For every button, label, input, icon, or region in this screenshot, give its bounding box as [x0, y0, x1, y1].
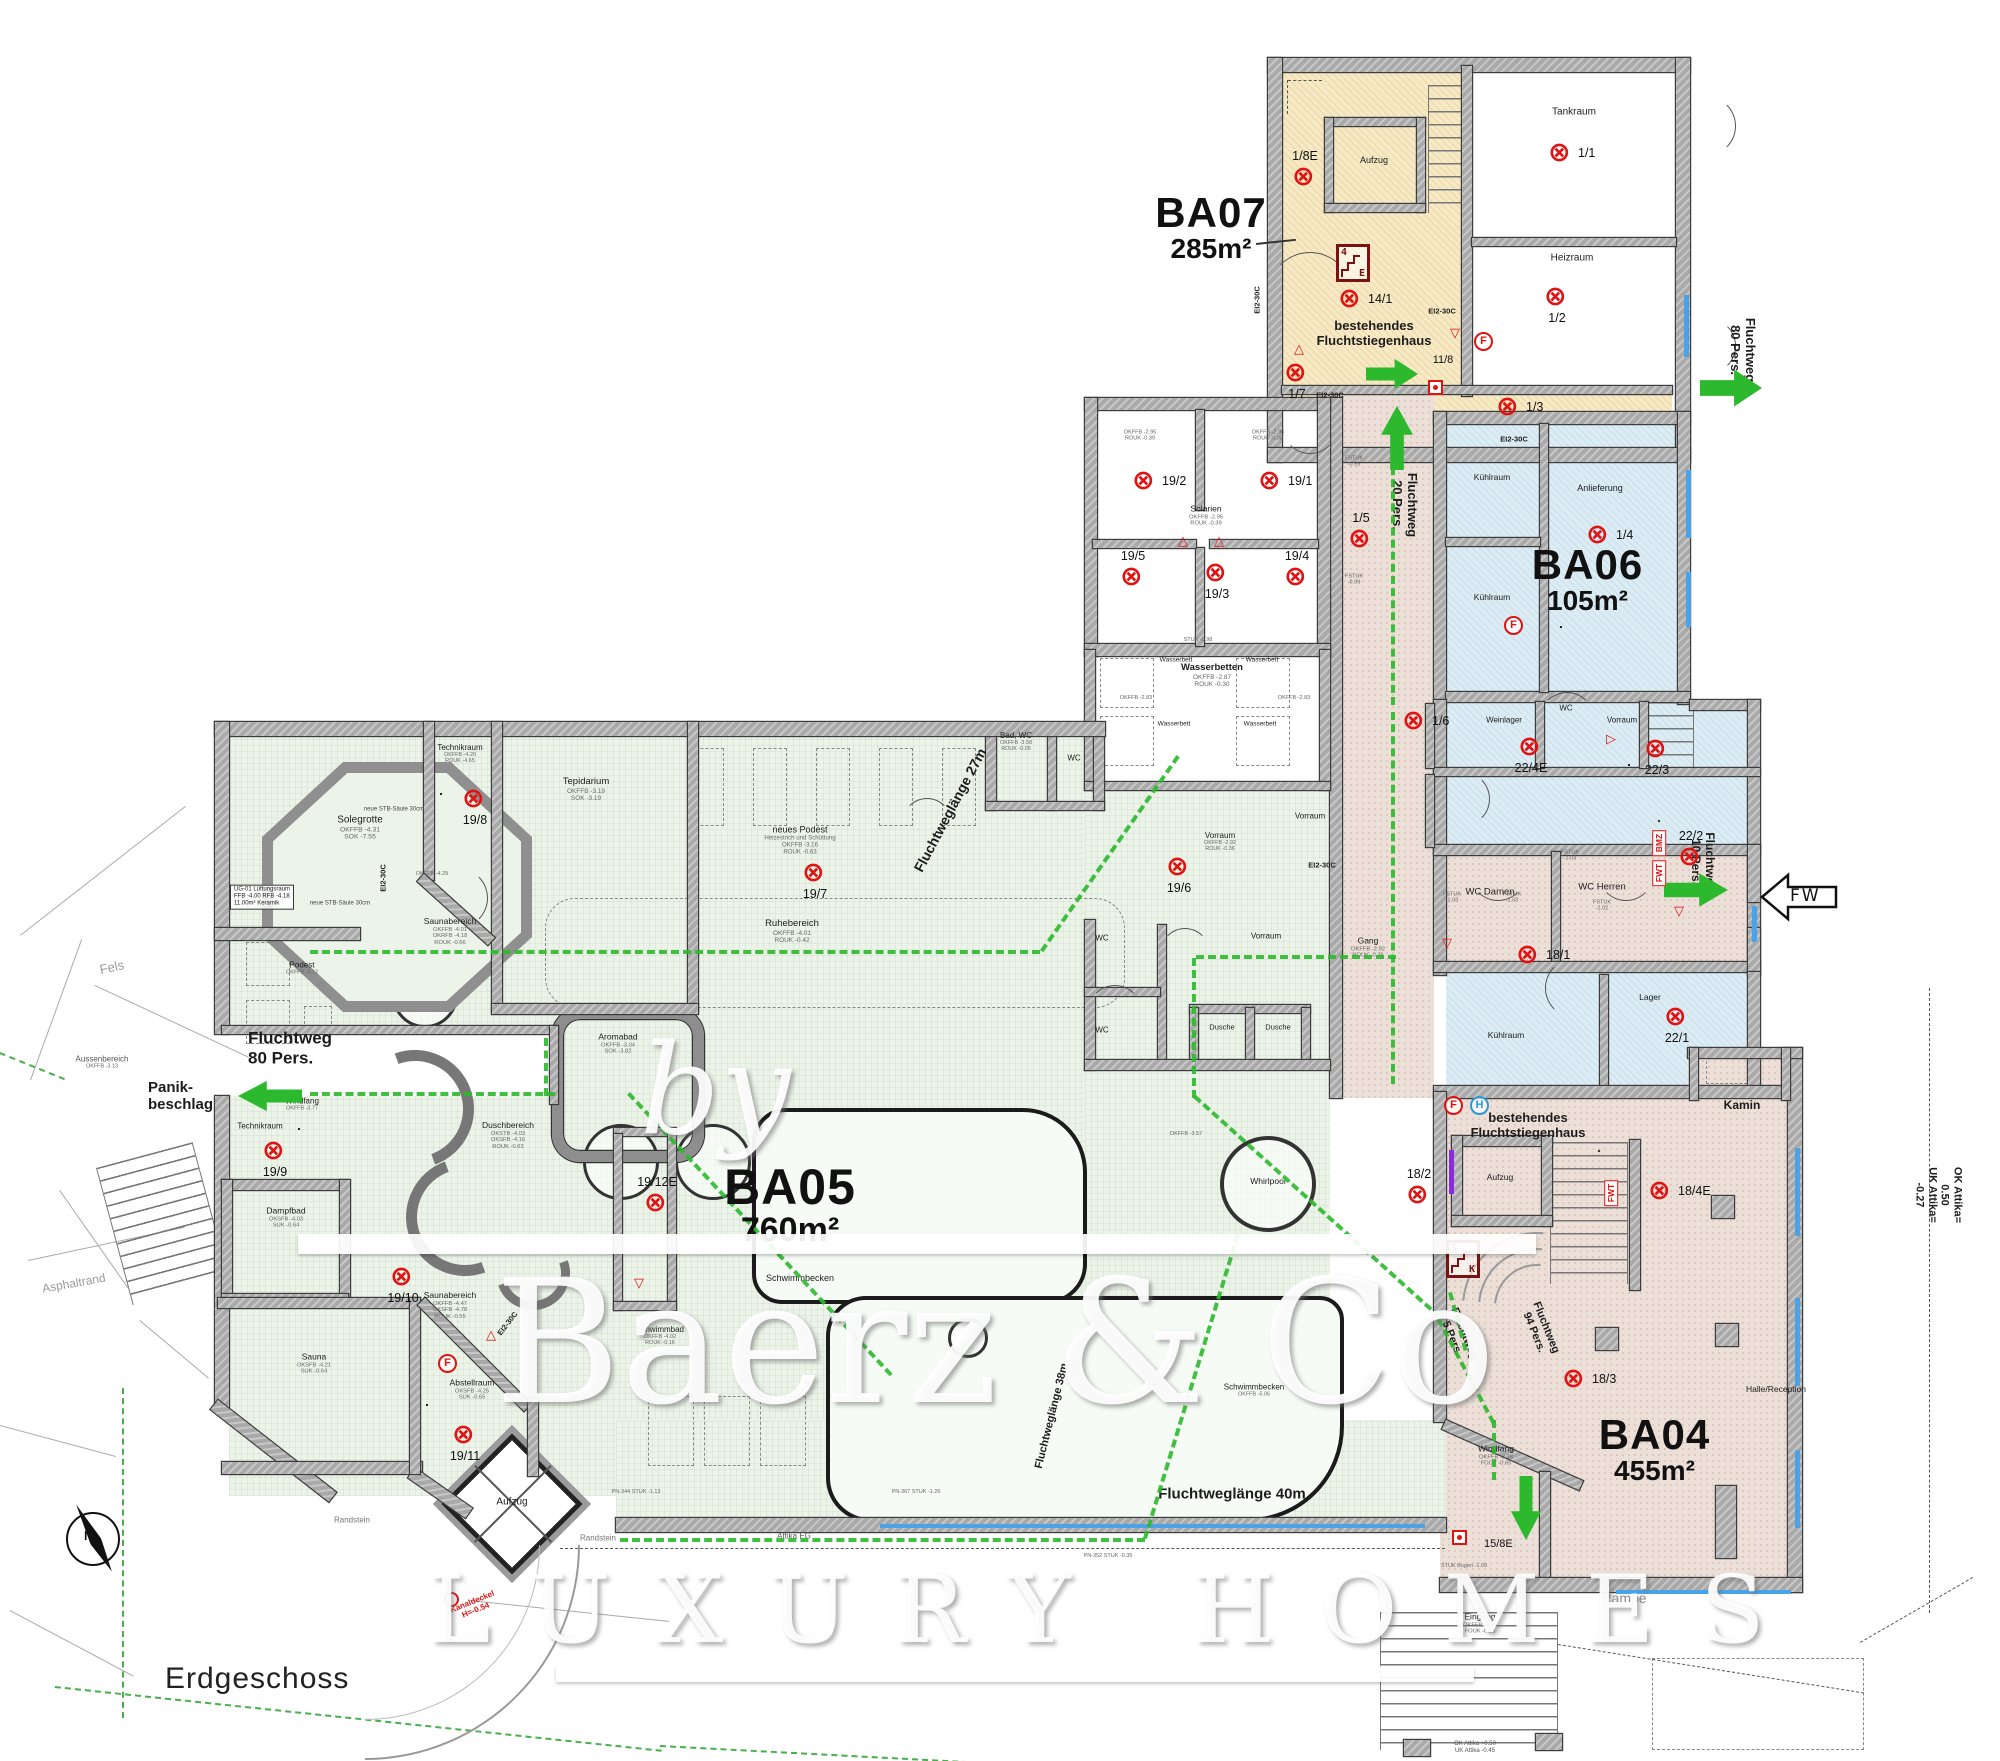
text-label: FSTUK -0.99: [1345, 456, 1363, 469]
glazing-window: [1795, 1298, 1800, 1386]
marker-label: 1/5: [1352, 511, 1369, 525]
marker-label: 19/7: [803, 887, 827, 901]
marker-label: 18/1: [1546, 948, 1570, 962]
extinguisher-icon: ⊗: [1348, 526, 1371, 552]
marker-label: 1/6: [1432, 714, 1449, 728]
extinguisher-icon: ⊗: [1678, 844, 1701, 870]
dashed-outline: [1652, 1658, 1864, 1750]
text-label: Wasserbett: [1160, 656, 1193, 663]
text-label: DampfbadOKSFB -4.03 SUK -0.64: [266, 1206, 305, 1229]
text-label: Aufzug: [1360, 155, 1388, 165]
text-label: Bad, WCOKFFB -3.58 ROUK -0.05: [1000, 731, 1032, 753]
wall-arc: [1282, 398, 1338, 454]
wall: [1085, 644, 1330, 656]
dashed-outline: [1100, 716, 1154, 766]
text-label: WC: [1095, 1025, 1108, 1034]
fire-system-box: FWT: [1652, 860, 1666, 886]
extinguisher-icon: ⊗: [1120, 564, 1143, 590]
marker-label: 19/2: [1162, 474, 1186, 488]
wall: [1462, 66, 1472, 396]
terrain-line: [30, 939, 82, 1080]
area-id: BA05: [700, 1162, 880, 1212]
dashed-reference-line: [560, 1548, 1445, 1549]
marker-label: 1/2: [1548, 311, 1565, 325]
wall: [1472, 238, 1676, 246]
wall: [222, 1180, 232, 1304]
door-triangle-icon: △: [1214, 534, 1224, 547]
extinguisher-marker: ⊗1/5: [1348, 526, 1374, 552]
text-label: PN-344 STUK -1.13: [612, 1489, 661, 1495]
wall: [1325, 118, 1425, 126]
marker-label: 18/4E: [1678, 1184, 1711, 1198]
text-label: OK Attika= 0.50 UK Attika= -0.27: [1913, 1164, 1964, 1226]
marker-label: 19/4: [1285, 549, 1309, 563]
text-label: Fluchtweglänge 40m: [1158, 1485, 1306, 1502]
text-label: OKFFB -2.95 ROUK -0.38: [1252, 430, 1284, 443]
text-label: OKFFB -4.29: [416, 871, 448, 877]
glazing-window: [1795, 1450, 1800, 1528]
extinguisher-marker: ⊗19/2: [1132, 468, 1158, 494]
extinguisher-marker: ⊗1/6: [1402, 708, 1428, 734]
marker-label: 1/3: [1526, 400, 1543, 414]
terrain-line: [20, 806, 186, 936]
wall: [1302, 1008, 1310, 1066]
wall: [1434, 768, 1760, 776]
text-label: WC: [1095, 933, 1108, 942]
extinguisher-marker: ⊗1/1: [1548, 140, 1574, 166]
extinguisher-marker: ⊗14/1: [1338, 286, 1364, 312]
extinguisher-marker: ⊗19/1: [1258, 468, 1284, 494]
stair-treads: [96, 1142, 229, 1305]
door-triangle-icon: ▽: [1442, 936, 1452, 949]
wall: [1630, 1140, 1640, 1290]
wall: [492, 1004, 698, 1014]
extinguisher-icon: ⊗: [1644, 736, 1667, 762]
extinguisher-marker: ⊗18/2: [1406, 1182, 1432, 1208]
marker-label: 19/11: [450, 1449, 480, 1463]
text-label: WC: [1067, 753, 1080, 762]
text-label: Fels: [98, 958, 125, 978]
escape-route-line: [310, 1092, 555, 1096]
text-label: Kühlraum: [1474, 473, 1510, 483]
terrain-line: [10, 1610, 134, 1677]
extinguisher-icon: ⊗: [1406, 1182, 1429, 1208]
text-label: FSTUK -1.02: [1593, 900, 1611, 913]
marker-label: 19/12E: [637, 1175, 677, 1189]
text-label: OKFFB -2.83: [1278, 695, 1310, 701]
text-label: bestehendes Fluchtstiegenhaus: [1471, 1111, 1586, 1141]
door-triangle-icon: ▽: [1450, 326, 1460, 339]
north-compass: N: [60, 1506, 126, 1572]
escape-route-line: [620, 1538, 1145, 1542]
stair-treads: [1428, 85, 1462, 213]
text-label: Kühlraum: [1488, 1031, 1524, 1041]
text-label: Randstein: [334, 1515, 370, 1524]
text-label: TechnikraumOKFFB -4.20 ROUK -4.65: [437, 743, 482, 765]
wall: [1094, 726, 1104, 810]
marker-label: 19/9: [263, 1165, 287, 1179]
extinguisher-marker: ⊗22/1: [1664, 1004, 1690, 1030]
door-triangle-icon: △: [1294, 342, 1304, 355]
wall: [492, 722, 502, 1012]
text-label: TepidariumOKFFB -3.19 SOK -3.19: [563, 777, 609, 803]
watermark-bar: [556, 1666, 1474, 1682]
door-triangle-icon: △: [1178, 534, 1188, 547]
text-label: Aufzug: [1487, 1173, 1513, 1183]
text-label: EI2-30C: [1254, 286, 1263, 314]
text-label: STUK -0.98: [1184, 637, 1213, 643]
text-label: neue STB-Säule 30cm: [364, 807, 424, 814]
hazard-hatch-icon: [440, 793, 442, 795]
dashed-outline: [753, 748, 787, 826]
text-label: SolarienOKFFB -2.95 ROUK -0.39: [1189, 504, 1223, 527]
dashed-reference-line: [1287, 80, 1288, 114]
wall: [424, 722, 434, 880]
text-label: Technikraum: [237, 1121, 282, 1130]
wall: [1196, 410, 1204, 510]
glazing-window: [1795, 1148, 1800, 1236]
text-label: EI2-30C: [1500, 436, 1528, 445]
area-label-ba07: BA07 285m²: [1146, 192, 1276, 265]
text-label: Panik- beschlag: [148, 1079, 213, 1114]
escape-route-line: [544, 1038, 548, 1096]
glazing-window: [1686, 572, 1691, 627]
text-label: Lager: [1639, 993, 1661, 1003]
text-label: PN-367 STUK -1.26: [892, 1489, 941, 1495]
extinguisher-marker: ⊗19/5: [1120, 564, 1146, 590]
marker-label: 1/4: [1616, 528, 1633, 542]
wall-arc: [1676, 96, 1736, 156]
glazing-window: [880, 1524, 1425, 1528]
text-label: Fluchtweg 80 Pers.: [248, 1028, 332, 1067]
text-label: Halle/Reception: [1746, 1385, 1806, 1395]
extinguisher-icon: ⊗: [1518, 734, 1541, 760]
letter-circle-f: F: [1474, 332, 1493, 351]
wall: [1325, 204, 1425, 212]
stair-symbol-box: 4E: [1336, 244, 1370, 282]
extinguisher-icon: ⊗: [1204, 560, 1227, 586]
letter-circle-f: F: [1444, 1096, 1463, 1115]
wall: [215, 928, 360, 940]
extinguisher-marker: ⊗19/4: [1284, 564, 1310, 590]
escape-route-line: [1192, 958, 1196, 1098]
alarm-box-marker: 11/8: [1428, 380, 1443, 395]
extinguisher-icon: ⊗: [802, 860, 825, 886]
wall: [1325, 118, 1333, 212]
wall: [1417, 118, 1425, 212]
marker-label: 19/10: [387, 1291, 418, 1305]
text-label: Vorraum: [1607, 715, 1637, 724]
wall-arc: [1160, 928, 1210, 978]
text-label: SolegrotteOKFFB -4.31 SOK -7.55: [337, 814, 383, 841]
hazard-hatch-icon: [1628, 764, 1630, 766]
text-label: Vorraum: [1251, 931, 1281, 940]
extinguisher-marker: ⊗19/8: [462, 786, 488, 812]
alarm-box-marker: 15/8E: [1452, 1530, 1467, 1545]
wall: [1712, 1196, 1734, 1218]
marker-label: 19/8: [463, 813, 487, 827]
wall: [215, 722, 229, 1034]
marker-label: 1/1: [1578, 146, 1595, 160]
dashed-reference-line: [1929, 988, 1930, 1613]
hazard-hatch-icon: [1560, 626, 1562, 628]
text-label: AussenbereichOKFFB -3.13: [76, 1054, 129, 1069]
extinguisher-icon: ⊗: [1548, 140, 1571, 166]
extinguisher-icon: ⊗: [262, 1138, 285, 1164]
marker-label: 14/1: [1368, 292, 1392, 306]
extinguisher-icon: ⊗: [1166, 854, 1189, 880]
compass-north-letter: N: [84, 1528, 93, 1543]
wall: [1085, 398, 1097, 656]
text-label: RuhebereichOKFFB -4.01 ROUK -0.42: [765, 919, 819, 945]
wall: [1716, 1324, 1738, 1346]
text-label: Weinlager: [1486, 715, 1522, 724]
extinguisher-marker: ⊗19/10: [390, 1264, 416, 1290]
watermark-brand: Baerz & Co: [420, 1242, 1570, 1443]
dashed-reference-line: [1288, 80, 1322, 81]
wall: [1048, 726, 1056, 810]
extinguisher-marker: ⊗22/2: [1678, 844, 1704, 870]
text-label: WC Herren: [1578, 883, 1626, 894]
escape-route-line: [310, 950, 1040, 954]
text-label: Whirlpool: [1250, 1177, 1285, 1187]
text-label: EI2-30C: [1308, 862, 1336, 871]
text-label: UG-01 Lüftungsraum FFB -4.00 RFB -4.18 1…: [230, 885, 294, 910]
terrain-line: [0, 1425, 116, 1457]
marker-label: 15/8E: [1484, 1538, 1513, 1550]
extinguisher-icon: ⊗: [1284, 360, 1307, 386]
extinguisher-marker: ⊗18/1: [1516, 942, 1542, 968]
text-label: OK Attika +0.50 UK Attika -0.45: [1454, 1741, 1496, 1755]
extinguisher-icon: ⊗: [1648, 1178, 1671, 1204]
fire-system-box: FWT: [1604, 1180, 1618, 1206]
site-boundary-line: [660, 1745, 1080, 1761]
glazing-window: [1449, 1150, 1454, 1194]
terrain-line: [139, 1320, 209, 1379]
text-label: Aufzug: [496, 1496, 527, 1508]
wall: [1434, 412, 1690, 424]
wall: [1782, 1048, 1790, 1100]
extinguisher-marker: ⊗1/2: [1544, 284, 1570, 310]
text-label: SaunabereichOKFFB -4.01 OKRFB -4.18 ROUK…: [424, 917, 476, 947]
wall: [215, 722, 1105, 736]
wall: [1690, 1048, 1698, 1100]
marker-label: 18/3: [1592, 1372, 1616, 1386]
text-label: neue STB-Säule 30cm: [310, 901, 370, 908]
wall: [222, 1180, 348, 1190]
marker-label: 22/1: [1665, 1031, 1689, 1045]
wall: [688, 722, 698, 1012]
marker-label: 11/8: [1433, 354, 1454, 366]
wall: [1434, 1086, 1800, 1098]
text-label: Wasserbett: [1246, 656, 1279, 663]
wall: [1716, 1486, 1736, 1558]
text-label: Dusche: [1265, 1024, 1290, 1033]
wall-arc: [1436, 772, 1490, 826]
wall: [1210, 540, 1318, 548]
text-label: Anlieferung: [1577, 483, 1623, 493]
wall: [1678, 412, 1690, 704]
extinguisher-icon: ⊗: [1292, 164, 1315, 190]
text-label: DuschbereichOKSTB -4.03 OKSFB -4.16 ROUK…: [482, 1121, 534, 1151]
wall: [1404, 1740, 1430, 1756]
fw-label: FW: [1790, 886, 1821, 906]
zone: [1434, 702, 1760, 768]
dashed-outline: [816, 748, 850, 826]
extinguisher-marker: ⊗19/7: [802, 860, 828, 886]
marker-label: 19/5: [1121, 549, 1145, 563]
wall: [1330, 398, 1342, 1098]
marker-label: 19/6: [1167, 881, 1191, 895]
escape-route-line: [1196, 955, 1396, 959]
extinguisher-icon: ⊗: [1544, 284, 1567, 310]
text-label: OKFFB -2.83: [1120, 695, 1152, 701]
marker-label: 19/3: [1205, 587, 1229, 601]
extinguisher-marker: ⊗18/4E: [1648, 1178, 1674, 1204]
wall-arc: [1540, 692, 1594, 746]
text-label: Wasserbett: [1244, 720, 1277, 727]
area-id: BA06: [1520, 544, 1655, 586]
text-label: WC: [1559, 703, 1572, 712]
extinguisher-marker: ⊗19/9: [262, 1138, 288, 1164]
area-id: BA07: [1146, 192, 1276, 234]
text-label: neues PodestHeizestrich und Schüttung OK…: [764, 824, 835, 855]
marker-label: 18/2: [1407, 1167, 1431, 1181]
watermark-by: by: [640, 1018, 791, 1163]
text-label: Heizraum: [1551, 252, 1594, 264]
text-label: VorraumOKFFB -2.92 ROUK -0.36: [1204, 831, 1236, 853]
extinguisher-marker: ⊗1/3: [1496, 394, 1522, 420]
wall: [1452, 1216, 1552, 1226]
marker-label: 19/1: [1288, 474, 1312, 488]
hazard-hatch-icon: [298, 1128, 300, 1130]
wall: [1434, 700, 1446, 975]
text-label: FSTUK -1.03: [1561, 850, 1579, 863]
text-label: Kühlraum: [1474, 593, 1510, 603]
text-label: OKFFB -2.95 ROUK -0.39: [1124, 430, 1156, 443]
extinguisher-marker: ⊗22/4E: [1518, 734, 1544, 760]
text-label: FSTUK -0.99: [1345, 574, 1363, 587]
door-triangle-icon: ▽: [1674, 904, 1684, 917]
wall: [1536, 1734, 1562, 1750]
text-label: FSTUK -1.03: [1443, 892, 1461, 905]
text-label: PodestOKFFB -3.12: [286, 960, 318, 975]
wall: [1320, 650, 1330, 790]
extinguisher-icon: ⊗: [1338, 286, 1361, 312]
text-label: OKFFB -3.57: [1170, 1131, 1202, 1137]
extinguisher-icon: ⊗: [1664, 1004, 1687, 1030]
zone: [1342, 392, 1434, 1098]
text-label: bestehendes Fluchtstiegenhaus: [1317, 319, 1432, 349]
extinguisher-marker: ⊗19/12E: [644, 1190, 670, 1216]
area-size: 455m²: [1582, 1456, 1727, 1487]
marker-label: 1/8E: [1292, 149, 1318, 163]
wall: [1268, 58, 1690, 72]
fire-system-box: BMZ: [1652, 830, 1666, 856]
letter-circle-f: F: [1504, 616, 1523, 635]
wall: [1748, 845, 1760, 902]
text-label: Fluchtweg 80 Pers.: [1727, 318, 1757, 382]
text-label: EI2-30C: [380, 864, 389, 892]
drawing-title: Erdgeschoss: [165, 1662, 349, 1696]
extinguisher-icon: ⊗: [462, 786, 485, 812]
wall: [1085, 1060, 1330, 1070]
text-label: Wasserbett: [1158, 720, 1191, 727]
wall: [1542, 1136, 1552, 1226]
wall-arc: [1545, 958, 1605, 1018]
extinguisher-icon: ⊗: [1496, 394, 1519, 420]
area-id: BA04: [1582, 1414, 1727, 1456]
wall: [986, 802, 1104, 810]
wall: [1748, 972, 1760, 1094]
extinguisher-icon: ⊗: [1284, 564, 1307, 590]
extinguisher-icon: ⊗: [644, 1190, 667, 1216]
extinguisher-icon: ⊗: [1132, 468, 1155, 494]
text-label: EI2-30C: [1316, 392, 1344, 401]
extinguisher-icon: ⊗: [1258, 468, 1281, 494]
extinguisher-marker: ⊗1/7: [1284, 360, 1310, 386]
marker-label: 22/4E: [1515, 761, 1548, 775]
extinguisher-icon: ⊗: [1516, 942, 1539, 968]
text-label: EI2-30C: [1428, 308, 1456, 317]
text-label: SaunaOKSFB -4.21 SUK -0.64: [297, 1352, 331, 1375]
text-label: Tankraum: [1552, 106, 1596, 118]
extinguisher-icon: ⊗: [1402, 708, 1425, 734]
area-label-ba04: BA04 455m²: [1582, 1414, 1727, 1487]
area-size: 105m²: [1520, 586, 1655, 617]
text-label: Randstein: [580, 1533, 616, 1542]
glazing-window: [1752, 906, 1757, 942]
area-label-ba06: BA06 105m²: [1520, 544, 1655, 617]
marker-label: 22/2: [1679, 829, 1703, 843]
extinguisher-marker: ⊗19/3: [1204, 560, 1230, 586]
marker-label: 1/7: [1288, 387, 1305, 401]
text-label: Asphaltrand: [41, 1272, 106, 1297]
door-triangle-icon: ▷: [1606, 732, 1616, 745]
text-label: WindfangOKFFB -3.28 FOUK -0.65: [1478, 1444, 1514, 1467]
floorplan-erdgeschoss: BA07 285m² BA06 105m² BA05 760m² BA04 45…: [0, 0, 2000, 1761]
text-label: AromabadOKFFB -3.04 SOK -3.82: [598, 1032, 637, 1055]
extinguisher-marker: ⊗19/6: [1166, 854, 1192, 880]
wall: [1426, 775, 1434, 847]
text-label: WasserbettenOKFFB -2.87 ROUK -0.30: [1181, 663, 1243, 689]
wall: [1434, 412, 1446, 704]
wall: [986, 726, 996, 810]
wall: [1246, 1008, 1254, 1066]
letter-circle-h: H: [1470, 1096, 1489, 1115]
dashed-outline: [1706, 1056, 1752, 1084]
extinguisher-marker: ⊗22/3: [1644, 736, 1670, 762]
extinguisher-icon: ⊗: [390, 1264, 413, 1290]
extinguisher-marker: ⊗1/8E: [1292, 164, 1318, 190]
escape-route-line: [1391, 712, 1395, 1084]
escape-route-line: [1391, 455, 1395, 705]
text-label: Dusche: [1209, 1024, 1234, 1033]
wall: [1085, 782, 1330, 790]
glazing-window: [1686, 470, 1691, 538]
marker-label: 22/3: [1645, 763, 1669, 777]
watermark-tagline: LUXURY HOMES: [428, 1556, 1811, 1665]
dashed-reference-line: [1860, 1577, 1973, 1643]
wall: [1196, 548, 1204, 646]
area-size: 285m²: [1146, 234, 1276, 265]
text-label: Kamin: [1724, 1099, 1761, 1113]
text-label: Vorraum: [1295, 811, 1325, 820]
text-label: FSTUK -1.03: [1503, 892, 1521, 905]
